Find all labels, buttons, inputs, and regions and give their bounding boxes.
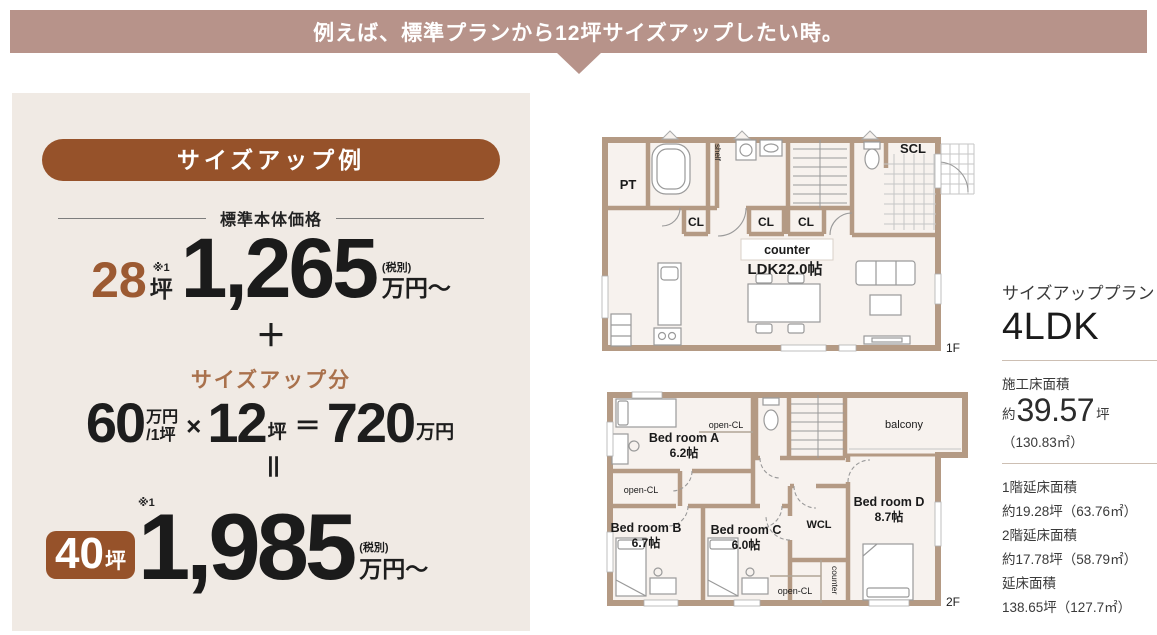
room-label-ldk: LDK22.0帖	[747, 260, 822, 278]
base-area-value: 28	[91, 259, 147, 302]
room-label-bedroom-a: Bed room A	[649, 431, 719, 445]
front-door-opening	[935, 154, 941, 188]
sizeup-formula: 60 万円 /1坪 × 12 坪 ＝ 720 万円	[12, 400, 530, 446]
closet-label-2: CL	[758, 215, 774, 229]
plus-sign: ＋	[12, 322, 530, 352]
floor-area-label-total: 延床面積	[1002, 572, 1157, 596]
base-price-unit: 万円〜	[382, 276, 451, 301]
banner-pointer-triangle	[556, 52, 602, 74]
construction-area-unit: 坪	[1096, 403, 1110, 423]
closet-label-3: CL	[798, 215, 814, 229]
dining-table	[748, 284, 820, 322]
tsubo-count-value: 12	[207, 400, 265, 446]
shelf-unit	[611, 314, 631, 346]
equals-sign: ＝	[295, 413, 321, 445]
floor-label-2f: 2F	[946, 595, 960, 609]
subtotal-value: 720	[327, 400, 414, 446]
kitchen-sink	[661, 267, 678, 280]
room-label-balcony: balcony	[885, 419, 923, 431]
room-label-wcl: WCL	[806, 519, 831, 531]
room-label-bedroom-d: Bed room D	[854, 495, 925, 509]
page: 例えば、標準プランから12坪サイズアップしたい時。 サイズアップ例 標準本体価格…	[0, 0, 1157, 635]
chair	[788, 324, 804, 333]
floorplan-2f-svg: open-CL Bed room A 6.2帖 balcony open-CL …	[584, 382, 984, 618]
desk-b	[650, 578, 676, 594]
base-price-suffix-col: (税別) 万円〜	[382, 261, 451, 302]
floor-label-1f: 1F	[946, 341, 960, 355]
floorplan-1f-svg: PT shelf CL CL CL counter LDK22.0帖 SCL 1…	[584, 128, 984, 364]
floor-area-value-total: 138.65坪（127.7㎡）	[1002, 596, 1157, 620]
plan-info-panel: サイズアッププラン 4LDK 施工床面積 約 39.57 坪 （130.83㎡）…	[1002, 283, 1157, 620]
room-label-shelf: shelf	[713, 144, 722, 162]
low-table	[870, 295, 901, 315]
total-price-unit: 万円〜	[359, 557, 428, 582]
total-area-value: 40	[55, 536, 104, 572]
total-area-unit: 坪	[105, 551, 126, 572]
tv-board	[864, 336, 910, 344]
room-size-bedroom-b: 6.7帖	[632, 535, 661, 550]
floor-area-label-1f: 1階延床面積	[1002, 476, 1157, 500]
room-size-bedroom-d: 8.7帖	[875, 509, 904, 524]
toilet-tank-2f	[763, 398, 779, 405]
total-price-value: 1,985	[138, 511, 353, 582]
construction-area-label: 施工床面積	[1002, 373, 1157, 393]
construction-area-m2: （130.83㎡）	[1002, 431, 1157, 451]
sofa	[856, 261, 915, 285]
sizeup-portion-label: サイズアップ分	[12, 364, 530, 394]
unit-price-unit-stack: 万円 /1坪	[146, 409, 178, 444]
room-label-pt: PT	[620, 177, 637, 192]
room-size-bedroom-a: 6.2帖	[670, 445, 699, 460]
toilet-bowl-2f	[764, 410, 778, 430]
unit-price-unit-bottom: /1坪	[146, 427, 175, 445]
times-sign: ×	[186, 413, 201, 445]
construction-area-row: 約 39.57 坪	[1002, 395, 1157, 425]
floor-area-value-1f: 約19.28坪（63.76㎡）	[1002, 500, 1157, 524]
vertical-equals: ＝	[258, 453, 285, 480]
header-banner: 例えば、標準プランから12坪サイズアップしたい時。	[10, 10, 1147, 53]
closet-label-1: CL	[688, 215, 704, 229]
divider	[1002, 360, 1157, 361]
total-price-col: ※1 1,985	[138, 497, 353, 582]
construction-area-value: 39.57	[1017, 395, 1095, 425]
base-price-value: 1,265	[181, 236, 376, 302]
floor-area-value-2f: 約17.78坪（58.79㎡）	[1002, 548, 1157, 572]
base-price-row: 28 ※1 坪 1,265 (税別) 万円〜	[12, 236, 530, 302]
toilet-tank-1f	[864, 142, 880, 149]
approx-prefix: 約	[1002, 403, 1016, 423]
floorplan-2f: open-CL Bed room A 6.2帖 balcony open-CL …	[584, 382, 984, 623]
chair	[756, 324, 772, 333]
toilet-bowl-1f	[865, 149, 879, 169]
base-footnote: ※1	[153, 262, 170, 275]
open-closet-label-bottom: open-CL	[778, 586, 813, 596]
tsubo-count-unit: 坪	[268, 422, 287, 445]
base-area-unit-col: ※1 坪	[150, 262, 173, 300]
unit-price-unit-top: 万円	[146, 409, 178, 427]
room-size-bedroom-c: 6.0帖	[732, 537, 761, 552]
vertical-equals-wrap: ＝	[12, 453, 530, 483]
divider	[1002, 463, 1157, 464]
subtotal-unit: 万円	[416, 422, 454, 445]
bathtub	[652, 144, 690, 194]
desk-c	[742, 578, 768, 594]
sizeup-example-panel: サイズアップ例 標準本体価格 28 ※1 坪 1,265 (税別) 万円〜 ＋ …	[12, 93, 530, 631]
open-closet-label-top: open-CL	[709, 420, 744, 430]
floorplan-1f: PT shelf CL CL CL counter LDK22.0帖 SCL 1…	[584, 128, 984, 369]
header-banner-text: 例えば、標準プランから12坪サイズアップしたい時。	[313, 17, 844, 47]
left-rule	[58, 218, 206, 219]
room-label-bedroom-b: Bed room B	[611, 521, 682, 535]
counter-label-2f: counter	[830, 566, 840, 595]
base-area-unit: 坪	[150, 278, 173, 301]
vanity-sink	[760, 140, 782, 156]
total-tax-note: (税別)	[359, 541, 388, 556]
room-label-bedroom-c: Bed room C	[711, 523, 782, 537]
sizeup-example-title: サイズアップ例	[42, 139, 500, 181]
base-tax-note: (税別)	[382, 261, 411, 276]
total-area-badge: 40 坪	[46, 531, 135, 579]
room-label-scl: SCL	[900, 141, 926, 156]
counter-label: counter	[764, 243, 810, 257]
desk-a	[612, 434, 628, 464]
open-closet-label-left: open-CL	[624, 485, 659, 495]
plan-name-label: サイズアッププラン	[1002, 283, 1157, 306]
washer	[736, 140, 756, 160]
total-price-suffix-col: (税別) 万円〜	[359, 541, 428, 582]
total-price-row: 40 坪 ※1 1,985 (税別) 万円〜	[12, 497, 530, 582]
floor-area-label-2f: 2階延床面積	[1002, 524, 1157, 548]
unit-price-value: 60	[86, 400, 144, 446]
plan-type: 4LDK	[1002, 306, 1157, 349]
right-rule	[336, 218, 484, 219]
